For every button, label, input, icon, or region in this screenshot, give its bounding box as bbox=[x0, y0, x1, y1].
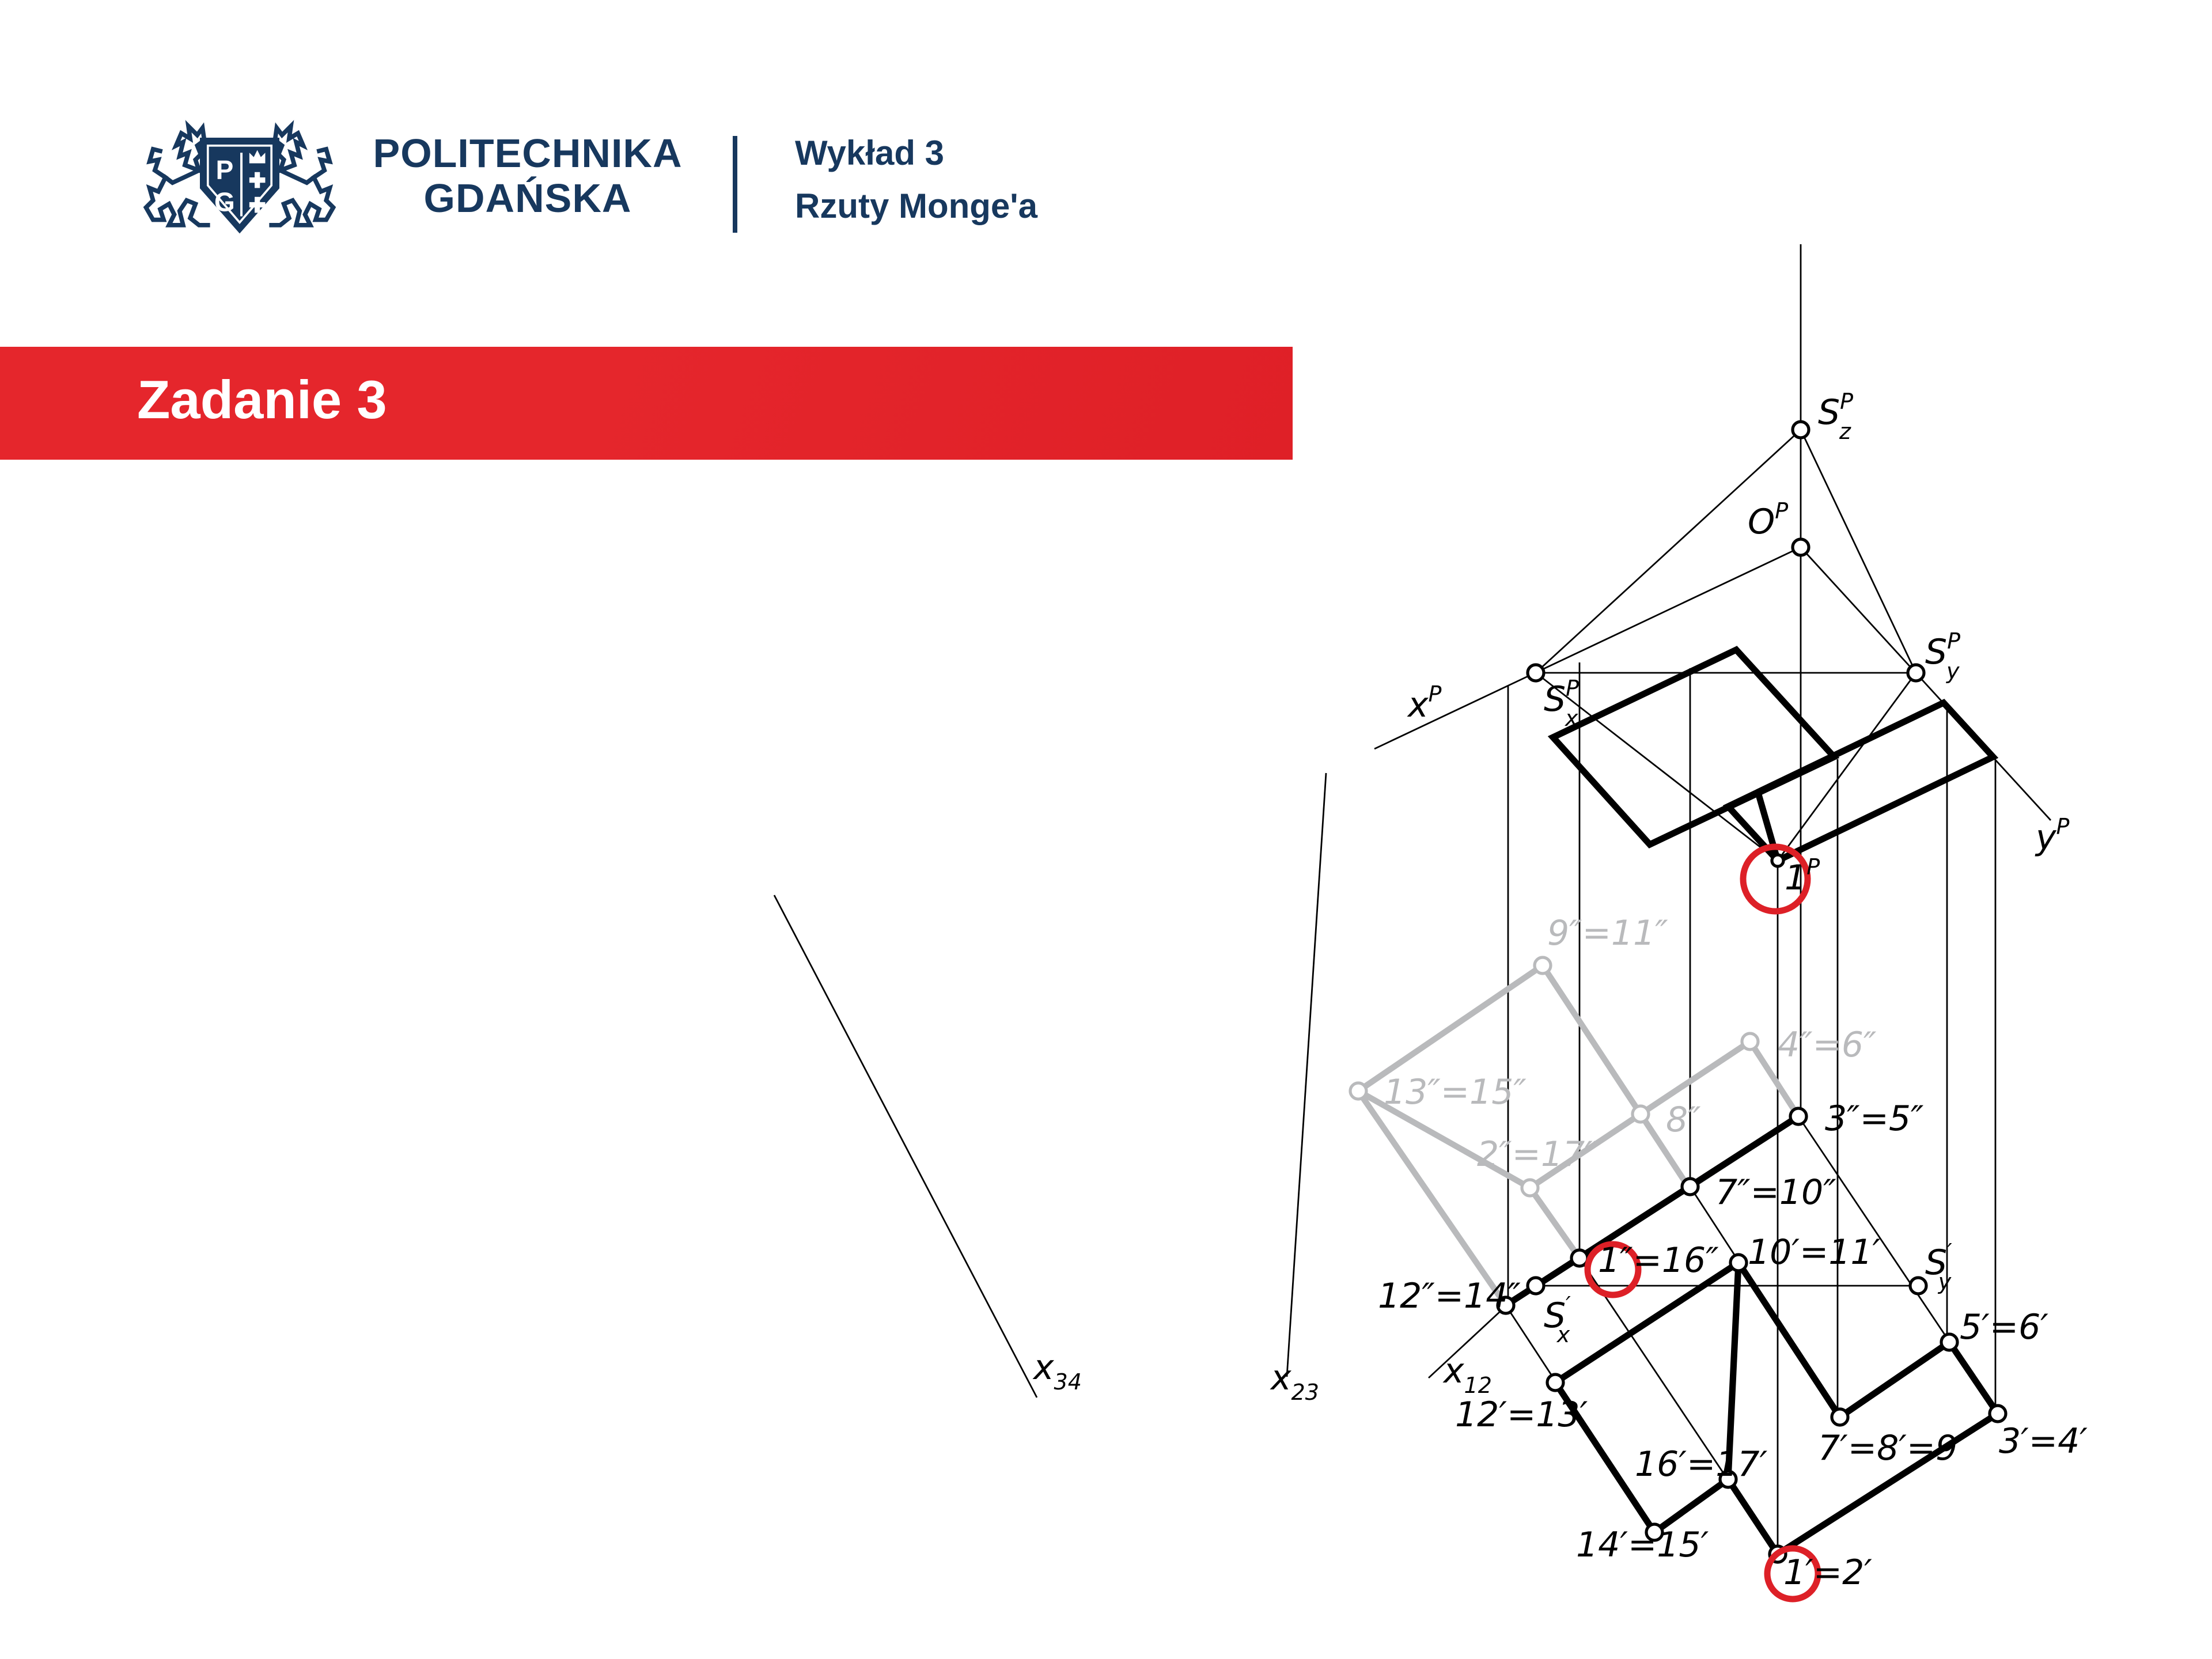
label-1-16-sec: 1″=16″ bbox=[1598, 1240, 1719, 1281]
label-10-11-pr: 10′=11′ bbox=[1748, 1232, 1881, 1272]
label-Sx-prime: S′x bbox=[1544, 1292, 1571, 1347]
triangle-side-sz-sx bbox=[1536, 430, 1801, 673]
triangle-side-sz-sy bbox=[1801, 430, 1916, 673]
gray-recall-13-15 bbox=[1358, 1091, 1506, 1305]
point-Sx-P bbox=[1528, 665, 1544, 681]
label-O-P: OP bbox=[1748, 498, 1788, 542]
pictorial-rect-left bbox=[1553, 650, 1834, 844]
point-9-11-sec bbox=[1535, 957, 1551, 974]
label-Sx-P: SPx bbox=[1544, 676, 1579, 731]
label-y-P: yP bbox=[2035, 814, 2070, 858]
point-8-sec bbox=[1633, 1106, 1649, 1122]
point-4-6-sec bbox=[1742, 1033, 1758, 1050]
label-7-8-9-pr: 7′=8′=9′ bbox=[1818, 1428, 1965, 1468]
point-5-6-pr bbox=[1941, 1334, 1957, 1350]
label-8-sec: 8″ bbox=[1666, 1100, 1701, 1140]
label-7-10-sec: 7″=10″ bbox=[1715, 1172, 1836, 1213]
point-12-13-pr bbox=[1547, 1374, 1563, 1391]
point-3-4-pr bbox=[1990, 1406, 2006, 1422]
recall-sy-1p bbox=[1778, 673, 1916, 861]
point-Sz-P bbox=[1793, 422, 1809, 438]
point-13-15-sec bbox=[1350, 1083, 1366, 1099]
label-14-15-pr: 14′=15′ bbox=[1576, 1525, 1709, 1565]
label-4-6-sec: 4″=6″ bbox=[1778, 1025, 1877, 1065]
x23-axis-line bbox=[1287, 773, 1326, 1377]
label-2-17-sec: 2″=17″ bbox=[1477, 1134, 1598, 1175]
label-x23: x23 bbox=[1270, 1358, 1319, 1405]
top-view bbox=[1555, 1263, 1998, 1554]
label-Sy-prime: S′y bbox=[1925, 1239, 1952, 1294]
label-3-4-pr: 3′=4′ bbox=[1999, 1421, 2088, 1461]
point-1-P bbox=[1772, 855, 1783, 866]
top-view-outline bbox=[1555, 1263, 1998, 1554]
label-3-5-sec: 3″=5″ bbox=[1825, 1099, 1924, 1139]
point-3-5-sec bbox=[1790, 1108, 1806, 1124]
point-Sy-P bbox=[1908, 665, 1924, 681]
label-9-11-sec: 9″=11″ bbox=[1547, 913, 1668, 953]
point-Sy-prime bbox=[1910, 1278, 1926, 1294]
label-1-2-pr: 1′=2′ bbox=[1783, 1552, 1872, 1593]
monge-projection-drawing: SPzOPSPxSPyxPyP1P9″=11″13″=15″2″=17″8″4″… bbox=[0, 0, 2212, 1659]
label-Sy-P: SPy bbox=[1925, 628, 1960, 684]
point-10-11-pr bbox=[1730, 1255, 1747, 1271]
point-2-17-sec bbox=[1522, 1180, 1538, 1196]
slide: P G POLITECHNIKA GDAŃSKA Wykład 3 Rzuty … bbox=[0, 0, 2212, 1659]
label-x-P: xP bbox=[1407, 681, 1442, 725]
label-x34: x34 bbox=[1032, 1347, 1082, 1395]
label-x12: x12 bbox=[1442, 1351, 1492, 1398]
label-16-17-pr: 16′=17′ bbox=[1635, 1444, 1768, 1484]
point-O-P bbox=[1793, 539, 1809, 555]
label-Sz-P: SPz bbox=[1818, 389, 1853, 444]
point-Sx-prime bbox=[1528, 1278, 1544, 1294]
label-1-P: 1P bbox=[1785, 854, 1820, 898]
construction-lines bbox=[774, 244, 2051, 1554]
label-13-15-sec: 13″=15″ bbox=[1384, 1072, 1527, 1112]
label-12-13-pr: 12′=13′ bbox=[1455, 1395, 1588, 1435]
label-5-6-pr: 5′=6′ bbox=[1960, 1307, 2048, 1347]
point-markers bbox=[1350, 422, 2006, 1562]
point-7-8-9-pr bbox=[1832, 1409, 1848, 1425]
x34-axis-line bbox=[774, 895, 1037, 1397]
point-7-10-sec bbox=[1682, 1179, 1698, 1195]
pictorial-view bbox=[1553, 650, 1993, 861]
gray-recall-2-17 bbox=[1530, 1188, 1580, 1258]
label-12-14-sec: 12″=14″ bbox=[1378, 1276, 1521, 1316]
